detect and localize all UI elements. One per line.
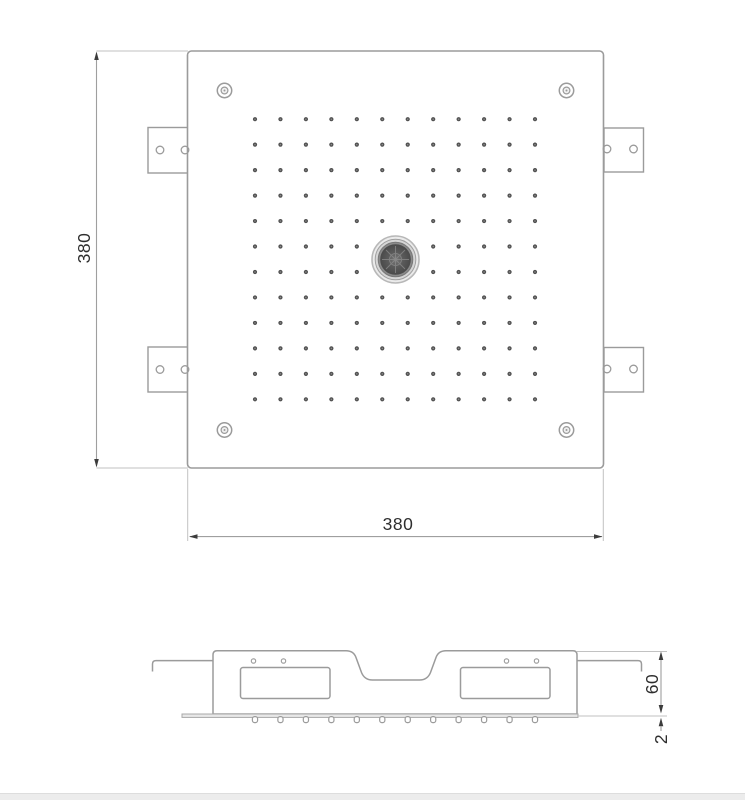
nozzle-dot (482, 321, 486, 325)
nozzle-dot (406, 295, 410, 299)
technical-drawing-page: 380 380 60 2 (0, 0, 745, 800)
nozzle-dot (253, 372, 257, 376)
side-view (153, 651, 668, 731)
nozzle-dot (355, 295, 359, 299)
nozzle-dot (507, 193, 511, 197)
nozzle-dot (278, 143, 282, 147)
nozzle-dot (457, 397, 461, 401)
nozzle-dot (457, 270, 461, 274)
nozzle-dot (406, 372, 410, 376)
nozzle-dot (355, 193, 359, 197)
nozzle-dot (406, 397, 410, 401)
top-view (94, 51, 643, 541)
dimension-label-depth: 60 (642, 662, 662, 706)
nozzle-dot (482, 372, 486, 376)
dimension-label-height: 380 (74, 218, 94, 278)
nozzle-dot (329, 244, 333, 248)
nozzle-dot (533, 143, 537, 147)
nozzle-dot (304, 295, 308, 299)
dimension-label-plate-thickness: 2 (651, 724, 671, 754)
nozzle-dot (253, 270, 257, 274)
nozzle-dot (431, 397, 435, 401)
nozzle-dot (482, 117, 486, 121)
nozzle-dot (304, 219, 308, 223)
nozzle-dot (329, 346, 333, 350)
nozzle-dot (507, 244, 511, 248)
nozzle-dot (482, 270, 486, 274)
nozzle-dot (507, 397, 511, 401)
nozzle-dot (406, 168, 410, 172)
nozzle-dot (507, 219, 511, 223)
nozzle-dot (431, 193, 435, 197)
nozzle-dot (431, 117, 435, 121)
nozzle-dot (507, 168, 511, 172)
nozzle-dot (507, 321, 511, 325)
nozzle-dot (278, 193, 282, 197)
nozzle-dot (278, 346, 282, 350)
nozzle-dot (304, 117, 308, 121)
nozzle-dot (533, 372, 537, 376)
nozzle-dot (253, 219, 257, 223)
nozzle-dot (329, 168, 333, 172)
nozzle-dot (482, 295, 486, 299)
nozzle-dot (533, 117, 537, 121)
side-nozzle-peg (431, 717, 436, 723)
nozzle-dot (380, 295, 384, 299)
nozzle-dot (482, 143, 486, 147)
nozzle-dot (278, 321, 282, 325)
nozzle-dot (482, 397, 486, 401)
image-bottom-strip (0, 793, 745, 800)
arrow-left-icon (189, 534, 198, 539)
nozzle-dot (253, 346, 257, 350)
arrow-up-icon (659, 652, 664, 661)
nozzle-dot (355, 372, 359, 376)
nozzle-dot (482, 168, 486, 172)
nozzle-dot (278, 168, 282, 172)
arrow-up-icon (94, 52, 99, 61)
nozzle-dot (278, 397, 282, 401)
nozzle-dot (355, 270, 359, 274)
side-nozzle-peg (456, 717, 461, 723)
nozzle-dot (406, 117, 410, 121)
corner-screw-top-left (217, 83, 231, 97)
nozzle-dot (507, 143, 511, 147)
nozzle-dot (253, 168, 257, 172)
nozzle-dot (329, 117, 333, 121)
nozzle-dot (457, 117, 461, 121)
nozzle-dot (355, 321, 359, 325)
nozzle-dot (431, 244, 435, 248)
nozzle-dot (431, 168, 435, 172)
flange-right (577, 661, 642, 672)
mounting-bracket-left-bottom (148, 347, 188, 392)
nozzle-dot (431, 321, 435, 325)
nozzle-dot (431, 270, 435, 274)
nozzle-dot (304, 397, 308, 401)
nozzle-dot (329, 295, 333, 299)
nozzle-dot (355, 117, 359, 121)
nozzle-dot (482, 346, 486, 350)
side-nozzle-peg (354, 717, 359, 723)
nozzle-dot (380, 321, 384, 325)
nozzle-dot (304, 193, 308, 197)
nozzle-dot (457, 168, 461, 172)
nozzle-dot (482, 193, 486, 197)
nozzle-dot (507, 295, 511, 299)
nozzle-dot (278, 372, 282, 376)
nozzle-dot (507, 117, 511, 121)
nozzle-dot (457, 219, 461, 223)
nozzle-dot (355, 168, 359, 172)
nozzle-dot (406, 143, 410, 147)
nozzle-dot (253, 244, 257, 248)
nozzle-dot (329, 372, 333, 376)
nozzle-dot (304, 270, 308, 274)
nozzle-dot (533, 270, 537, 274)
nozzle-dot (380, 219, 384, 223)
nozzle-dot (457, 372, 461, 376)
nozzle-dot (355, 244, 359, 248)
side-nozzle-peg (303, 717, 308, 723)
nozzle-dot (507, 346, 511, 350)
flange-left (153, 661, 214, 672)
side-nozzle-peg (481, 717, 486, 723)
nozzle-dot (253, 295, 257, 299)
side-nozzle-peg (252, 717, 257, 723)
housing-body (213, 651, 577, 714)
nozzle-dot (431, 346, 435, 350)
nozzle-dot (304, 346, 308, 350)
nozzle-dot (304, 244, 308, 248)
nozzle-dot (380, 168, 384, 172)
nozzle-dot (431, 143, 435, 147)
nozzle-dot (304, 372, 308, 376)
nozzle-dot (329, 219, 333, 223)
nozzle-dot (406, 346, 410, 350)
nozzle-dot (431, 219, 435, 223)
nozzle-dot (253, 143, 257, 147)
nozzle-dot (253, 321, 257, 325)
corner-screw-bottom-left (217, 423, 231, 437)
mounting-bracket-left-top (148, 128, 188, 174)
nozzle-dot (380, 397, 384, 401)
nozzle-dot (304, 321, 308, 325)
nozzle-dot (533, 244, 537, 248)
nozzle-dot (278, 219, 282, 223)
shower-head-drawing (0, 0, 745, 800)
nozzle-dot (278, 295, 282, 299)
side-nozzle-peg (405, 717, 410, 723)
nozzle-dot (355, 219, 359, 223)
dimension-label-width: 380 (368, 514, 428, 534)
nozzle-dot (380, 346, 384, 350)
nozzle-dot (278, 117, 282, 121)
nozzle-dot (253, 397, 257, 401)
central-sprayer (372, 236, 419, 283)
side-nozzle-peg (278, 717, 283, 723)
nozzle-dot (329, 321, 333, 325)
nozzle-dot (533, 346, 537, 350)
nozzle-dot (278, 270, 282, 274)
nozzle-dot (355, 143, 359, 147)
nozzle-dot (457, 321, 461, 325)
nozzle-dot (380, 143, 384, 147)
nozzle-dot (278, 244, 282, 248)
arrow-down-icon (94, 459, 99, 468)
nozzle-dot (457, 143, 461, 147)
nozzle-dot (482, 219, 486, 223)
nozzle-dot (533, 397, 537, 401)
nozzle-dot (304, 143, 308, 147)
nozzle-dot (507, 270, 511, 274)
nozzle-dot (329, 143, 333, 147)
nozzle-dot (380, 117, 384, 121)
nozzle-dot (355, 397, 359, 401)
nozzle-dot (457, 295, 461, 299)
nozzle-dot (533, 193, 537, 197)
nozzle-dot (380, 193, 384, 197)
nozzle-dot (457, 244, 461, 248)
side-nozzle-peg (329, 717, 334, 723)
nozzle-dot (457, 193, 461, 197)
nozzle-dot (533, 295, 537, 299)
nozzle-dot (533, 321, 537, 325)
side-nozzle-peg (507, 717, 512, 723)
corner-screw-bottom-right (559, 423, 573, 437)
corner-screw-top-right (559, 83, 573, 97)
side-nozzle-peg (380, 717, 385, 723)
nozzle-dot (533, 168, 537, 172)
side-nozzle-peg (532, 717, 537, 723)
nozzle-dot (253, 193, 257, 197)
arrow-right-icon (594, 534, 603, 539)
nozzle-dot (431, 372, 435, 376)
nozzle-dot (304, 168, 308, 172)
nozzle-dot (380, 372, 384, 376)
arrow-down-icon (659, 705, 664, 714)
nozzle-dot (355, 346, 359, 350)
nozzle-dot (406, 321, 410, 325)
nozzle-dot (329, 397, 333, 401)
nozzle-dot (406, 193, 410, 197)
nozzle-dot (457, 346, 461, 350)
dimension-height (94, 51, 188, 468)
nozzle-dot (431, 295, 435, 299)
nozzle-dot (329, 193, 333, 197)
nozzle-dot (533, 219, 537, 223)
nozzle-dot (253, 117, 257, 121)
nozzle-dot (329, 270, 333, 274)
nozzle-dot (507, 372, 511, 376)
nozzle-dot (482, 244, 486, 248)
nozzle-dot (406, 219, 410, 223)
